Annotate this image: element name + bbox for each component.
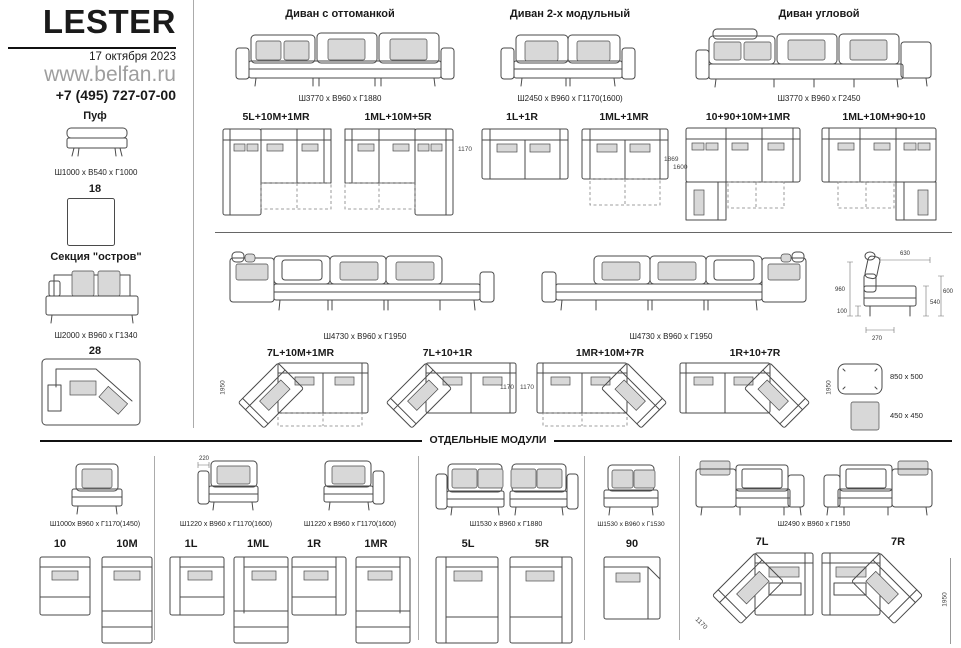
module-label: 10 bbox=[30, 538, 90, 550]
island-dimensions: Ш2000 x В960 x Г1340 bbox=[10, 331, 182, 340]
config-top-view-drawing bbox=[678, 361, 818, 429]
module-label: 5R bbox=[514, 538, 570, 550]
side-dim-seat: 540 bbox=[930, 300, 941, 306]
two-module-sofa-title: Диван 2-х модульный bbox=[468, 8, 672, 20]
module-top-view-drawing bbox=[38, 555, 92, 617]
module-front-drawing bbox=[64, 460, 130, 518]
config-top-view-drawing bbox=[684, 126, 802, 222]
config-top-view-drawing bbox=[378, 361, 518, 429]
group-divider bbox=[679, 456, 680, 640]
group-divider bbox=[418, 456, 419, 640]
modules-divider-left bbox=[40, 440, 422, 442]
island-top-view-drawing bbox=[40, 357, 142, 429]
config-top-view-drawing bbox=[580, 127, 670, 211]
pillow-square-drawing bbox=[849, 400, 881, 432]
pouf-front-drawing bbox=[62, 124, 132, 164]
long-sofa-front-drawing bbox=[228, 250, 500, 314]
module-front-drawing bbox=[314, 455, 388, 518]
config-label: 7L+10+1R bbox=[385, 347, 510, 359]
dimension-label: 1950 bbox=[826, 380, 833, 394]
pouf-top-view-drawing bbox=[66, 197, 116, 247]
module-label: 5L bbox=[440, 538, 496, 550]
config-top-view-drawing bbox=[820, 126, 938, 222]
module-top-view-drawing bbox=[690, 551, 815, 645]
module-label: 7L bbox=[730, 536, 794, 548]
ottoman-sofa-front-drawing bbox=[234, 28, 456, 90]
module-label: 1L bbox=[162, 538, 220, 550]
module-top-view-drawing bbox=[602, 555, 662, 621]
catalog-page: LESTER 17 октября 2023 www.belfan.ru +7 … bbox=[0, 0, 961, 648]
config-label: 1ML+10M+90+10 bbox=[818, 111, 950, 123]
module-top-view-drawing bbox=[820, 551, 945, 645]
module-label: 1R bbox=[286, 538, 342, 550]
module-dimensions: Ш1220 х В960 х Г1170(1600) bbox=[282, 521, 418, 528]
ottoman-sofa-title: Диван с оттоманкой bbox=[222, 8, 458, 20]
dimension-label: 1170 bbox=[520, 384, 534, 391]
config-label: 1ML+10M+5R bbox=[342, 111, 454, 123]
module-label: 1MR bbox=[346, 538, 406, 550]
config-label: 1ML+1MR bbox=[576, 111, 672, 123]
config-label: 5L+10M+1MR bbox=[220, 111, 332, 123]
module-front-drawing: 220 bbox=[194, 455, 268, 518]
module-front-drawing bbox=[506, 460, 582, 518]
two-module-sofa-front-drawing bbox=[498, 30, 638, 90]
module-dimensions: Ш1000х В960 х Г1170(1450) bbox=[12, 521, 178, 528]
island-section-label: Секция "остров" bbox=[10, 251, 182, 263]
config-top-view-drawing bbox=[221, 127, 333, 219]
modules-divider-right bbox=[554, 440, 952, 442]
module-front-drawing bbox=[692, 457, 810, 519]
module-label: 10M bbox=[96, 538, 158, 550]
sidebar-divider bbox=[193, 0, 194, 428]
island-code: 28 bbox=[20, 345, 170, 357]
pouf-dimensions: Ш1000 x В540 x Г1000 bbox=[10, 168, 182, 177]
long-sofa-dimensions: Ш4730 x В960 x Г1950 bbox=[252, 332, 478, 341]
module-top-view-drawing bbox=[232, 555, 290, 645]
module-front-drawing bbox=[818, 457, 936, 519]
modules-section-title: ОТДЕЛЬНЫЕ МОДУЛИ bbox=[426, 434, 550, 446]
module-dimensions: Ш1220 х В960 х Г1170(1600) bbox=[158, 521, 294, 528]
side-dim-height: 960 bbox=[835, 287, 846, 293]
config-top-view-drawing bbox=[343, 127, 455, 219]
dimension-label: 1170 bbox=[458, 146, 472, 153]
dimension-label: 1170 bbox=[500, 384, 514, 391]
pillow-square-size: 450 x 450 bbox=[890, 411, 950, 420]
side-dim-arm: 600 bbox=[943, 289, 954, 295]
config-label: 1L+1R bbox=[474, 111, 570, 123]
arm-dimension-label: 220 bbox=[199, 456, 210, 462]
catalog-date: 17 октября 2023 bbox=[36, 51, 176, 63]
config-label: 10+90+10M+1MR bbox=[682, 111, 814, 123]
module-label: 1ML bbox=[226, 538, 290, 550]
pillow-rect-drawing bbox=[836, 362, 884, 396]
two-module-sofa-dimensions: Ш2450 x В960 x Г1170(1600) bbox=[468, 94, 672, 103]
long-sofa-front-drawing bbox=[536, 250, 808, 314]
module-top-view-drawing bbox=[354, 555, 412, 645]
module-top-view-drawing bbox=[168, 555, 226, 617]
module-top-view-drawing bbox=[434, 555, 500, 645]
pouf-code: 18 bbox=[20, 183, 170, 195]
dimension-label: 1950 bbox=[942, 592, 949, 606]
config-label: 7L+10M+1MR bbox=[238, 347, 363, 359]
module-top-view-drawing bbox=[290, 555, 348, 617]
config-top-view-drawing bbox=[230, 361, 370, 429]
config-top-view-drawing bbox=[535, 361, 675, 429]
module-dimensions: Ш2490 х В960 х Г1950 bbox=[738, 521, 890, 528]
module-label: 90 bbox=[602, 538, 662, 550]
section-divider bbox=[215, 232, 952, 233]
config-top-view-drawing bbox=[480, 127, 570, 185]
corner-sofa-title: Диван угловой bbox=[688, 8, 950, 20]
title-underline bbox=[8, 47, 176, 49]
config-label: 1MR+10M+7R bbox=[545, 347, 675, 359]
module-top-view-drawing bbox=[508, 555, 574, 645]
dimension-label: 1950 bbox=[220, 380, 227, 394]
page-title: LESTER bbox=[36, 4, 176, 40]
module-front-drawing bbox=[598, 461, 664, 517]
phone-number: +7 (495) 727-07-00 bbox=[8, 87, 176, 103]
side-view-dimension-drawing: 630 960 100 270 540 600 bbox=[834, 246, 956, 346]
module-top-view-drawing bbox=[100, 555, 154, 645]
module-label: 7R bbox=[866, 536, 930, 548]
config-label: 1R+10+7R bbox=[695, 347, 815, 359]
pillow-rect-size: 850 x 500 bbox=[890, 372, 950, 381]
side-dim-leg: 100 bbox=[837, 309, 848, 315]
side-dim-base: 270 bbox=[872, 336, 883, 342]
dimension-label: 1869 bbox=[664, 156, 678, 163]
group-divider bbox=[584, 456, 585, 640]
island-front-drawing bbox=[42, 265, 142, 329]
dimension-line bbox=[950, 558, 951, 644]
module-dimensions: Ш1530 х В960 х Г1880 bbox=[430, 521, 582, 528]
website-url: www.belfan.ru bbox=[8, 63, 176, 87]
module-dimensions: Ш1530 х В960 х Г1530 bbox=[586, 521, 676, 528]
corner-sofa-front-drawing bbox=[694, 26, 944, 90]
long-sofa-dimensions: Ш4730 x В960 x Г1950 bbox=[558, 332, 784, 341]
ottoman-sofa-dimensions: Ш3770 x В960 x Г1880 bbox=[222, 94, 458, 103]
module-front-drawing bbox=[432, 460, 508, 518]
pouf-label: Пуф bbox=[20, 110, 170, 122]
corner-sofa-dimensions: Ш3770 x В960 x Г2450 bbox=[688, 94, 950, 103]
side-dim-top: 630 bbox=[900, 251, 911, 257]
